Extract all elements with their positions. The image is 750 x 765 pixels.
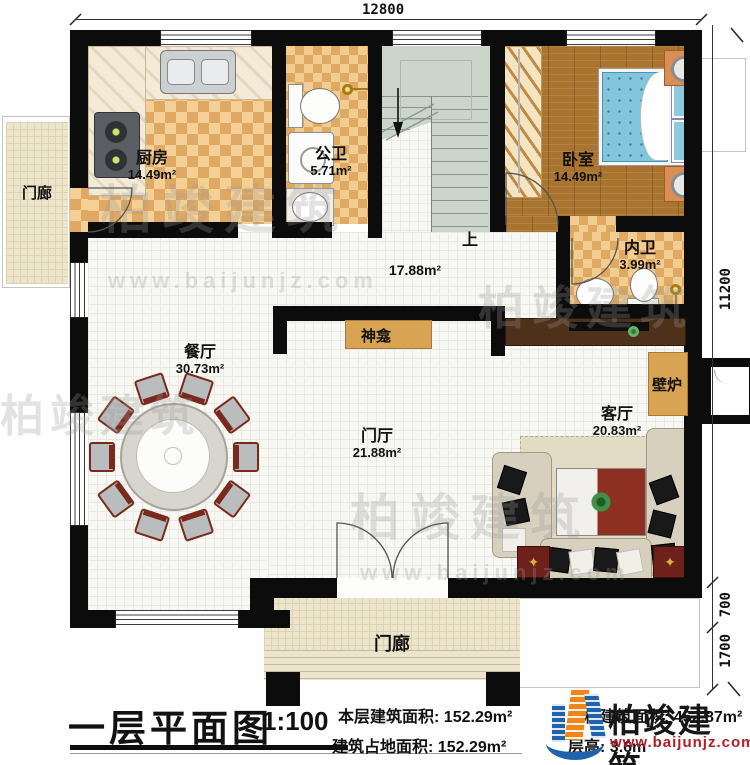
label-fireplace: 壁炉 (652, 374, 682, 395)
room-label-dining: 餐厅 30.73m² (176, 344, 224, 377)
wall-kitchen-bath (272, 30, 286, 238)
footprint-area-line: 建筑占地面积: 152.29m² (332, 733, 506, 757)
kitchen-sink (160, 50, 236, 94)
porch-column-right (486, 672, 520, 706)
shower-arm-public (352, 88, 368, 90)
wall-shrine (273, 306, 505, 321)
room-label-public-bath: 公卫 5.71m² (310, 146, 351, 179)
wall-shrine-stub-right (491, 306, 505, 356)
dining-floor-extension (88, 560, 268, 612)
plan-title: 一层平面图 (68, 698, 273, 752)
wall-foyer-bottom (250, 578, 702, 598)
logo-url-text: www.baijunjz.com (610, 734, 750, 751)
public-bath-toilet (300, 88, 340, 124)
logo-icon (544, 686, 608, 760)
coffee-table (556, 468, 646, 536)
room-label-bedroom: 卧室 14.49m² (554, 152, 602, 185)
dining-chair (233, 442, 259, 472)
floor-plan-canvas: ✦ ✦ (0, 0, 750, 765)
plan-scale: 1:100 (262, 706, 329, 737)
chimney (702, 358, 750, 424)
label-shrine: 神龛 (361, 325, 391, 346)
door-opening-porch (337, 578, 448, 598)
room-label-foyer: 门厅 21.88m² (353, 428, 401, 461)
tv-console (505, 318, 686, 346)
wall-bath-bottom (286, 222, 332, 238)
dimension-right-porch: 1700 (718, 634, 734, 668)
side-table-left: ✦ (517, 546, 550, 578)
plant-small (628, 326, 639, 337)
room-label-hallway-area: 17.88m² (389, 262, 441, 278)
wall-ensuite-bottom (556, 304, 702, 318)
eave-bottom-right (508, 598, 700, 688)
left-porch-floor (6, 122, 68, 284)
dimension-top: 12800 (362, 2, 404, 18)
room-label-ensuite: 内卫 3.99m² (619, 240, 660, 273)
logo-brand-text: 柏竣建筑 (608, 694, 744, 765)
window-left-dining (70, 412, 88, 526)
window-top-kitchen (160, 30, 252, 46)
wall-ensuite-left (556, 216, 570, 318)
dimension-line-top (75, 19, 702, 20)
floor-area-line: 本层建筑面积: 152.29m² (338, 703, 512, 727)
wall-stairs-bedroom (490, 30, 505, 232)
wall-left (70, 30, 88, 628)
window-top-stairs (392, 30, 482, 46)
stair-landing-rail (400, 60, 472, 120)
door-opening-kitchen-porch (70, 188, 88, 232)
wall-kitchen-bottom (78, 222, 238, 238)
wall-shrine-stub-left (273, 306, 287, 354)
dining-chair (89, 442, 115, 472)
public-bath-sink (292, 192, 328, 222)
room-label-living: 客厅 20.83m² (593, 406, 641, 439)
window-dining-bottom (115, 610, 239, 628)
label-porch-left: 门廊 (22, 182, 52, 203)
label-porch-bottom: 门廊 (374, 630, 410, 656)
door-opening-ensuite (570, 216, 616, 232)
dining-table (120, 403, 228, 511)
door-opening-bedroom (506, 216, 558, 232)
understair-floor (382, 122, 431, 232)
company-logo: 柏竣建筑 www.baijunjz.com (544, 686, 744, 764)
stair-divider (431, 96, 432, 232)
dimension-right-eave: 700 (718, 592, 734, 617)
room-label-kitchen: 厨房 14.49m² (128, 150, 176, 183)
wall-bath-stairs (368, 30, 382, 238)
dimension-right-main: 11200 (718, 268, 734, 310)
dimension-line-right (712, 25, 713, 690)
label-stairs-up: 上 (462, 226, 478, 250)
eave-top-right (696, 58, 746, 152)
plant-centerpiece (588, 489, 614, 515)
side-table-right: ✦ (653, 546, 687, 578)
window-left-upper (70, 262, 88, 318)
window-top-bedroom (566, 30, 656, 46)
